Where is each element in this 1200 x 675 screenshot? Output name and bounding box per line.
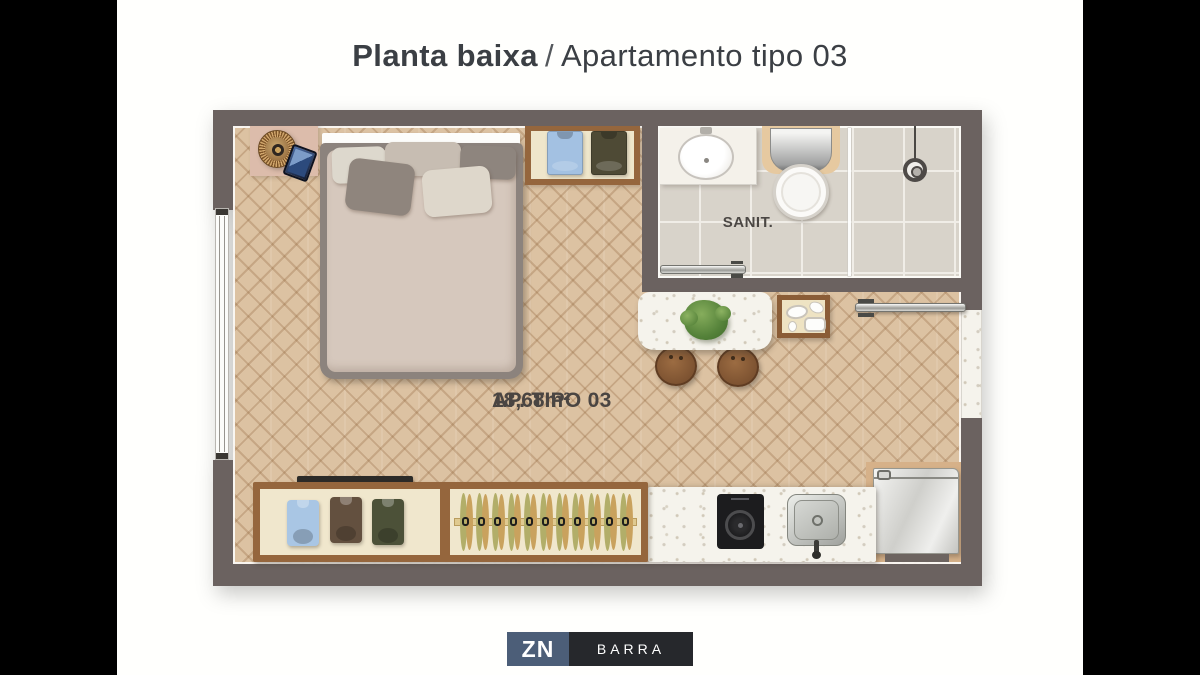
open-closet-niche (525, 125, 640, 185)
title-separator: / (545, 38, 554, 73)
folded-shirt (287, 500, 319, 546)
entry-threshold (961, 310, 982, 418)
kitchen-faucet-icon (814, 540, 819, 556)
shower-drain-icon (903, 158, 927, 182)
bathroom-sliding-door (660, 265, 746, 274)
wall (642, 278, 961, 292)
double-bed (320, 143, 523, 379)
drain-icon (812, 515, 823, 526)
refrigerator (873, 468, 959, 554)
bathroom-faucet-icon (700, 127, 712, 134)
kitchen-sink-basin (794, 500, 839, 540)
cooktop (717, 494, 764, 549)
kitchen-sink (787, 494, 846, 546)
hanging-garment (524, 493, 537, 551)
logo-zn-badge: ZN (507, 632, 569, 666)
wall (961, 418, 982, 586)
logo-barra-badge: BARRA (569, 632, 693, 666)
stool (717, 347, 759, 387)
plant-icon (684, 300, 728, 340)
logo-barra-text: BARRA (597, 641, 665, 657)
unit-area-text: 18,68m² (492, 388, 570, 414)
pillow (344, 157, 416, 217)
hanging-garment (604, 493, 617, 551)
bathroom-label: SANIT. (693, 214, 803, 231)
bathroom-sink (678, 134, 734, 180)
wardrobe-shelf-section (260, 489, 440, 555)
wall (642, 110, 658, 292)
hanging-garment (620, 493, 633, 551)
wardrobe (253, 482, 648, 562)
wall (961, 110, 982, 310)
hanging-shirt (547, 131, 583, 175)
serving-tray (777, 295, 830, 338)
window (215, 208, 229, 460)
hanging-garment (572, 493, 585, 551)
bathroom: SANIT. (658, 126, 961, 278)
page-title: Planta baixa/Apartamento tipo 03 (117, 38, 1083, 74)
wall (213, 110, 233, 210)
hanging-shirt (591, 131, 627, 175)
wall (213, 110, 982, 126)
title-secondary: Apartamento tipo 03 (561, 38, 848, 73)
hanging-garment (588, 493, 601, 551)
wall (213, 564, 982, 586)
entry-door (855, 303, 966, 312)
shower-glass-partition (848, 128, 851, 276)
pillow (421, 165, 493, 218)
hanging-garment (540, 493, 553, 551)
stool (655, 346, 697, 386)
hanging-garment (460, 493, 473, 551)
hanging-garment (556, 493, 569, 551)
kitchen-counter (648, 487, 876, 562)
dish-icon (807, 299, 825, 315)
folded-shirt (330, 497, 362, 543)
hanging-garment (508, 493, 521, 551)
title-primary: Planta baixa (352, 38, 538, 73)
refrigerator-base (885, 554, 949, 562)
dish-icon (804, 317, 826, 332)
presentation-slide: Planta baixa/Apartamento tipo 03 SANIT. (0, 0, 1200, 675)
toilet (773, 164, 829, 220)
shower-hose (914, 126, 916, 160)
burner-icon (725, 510, 755, 540)
folded-shirt (372, 499, 404, 545)
floor-plan: SANIT. (213, 110, 982, 586)
hanging-garment (476, 493, 489, 551)
logo-zn-text: ZN (522, 636, 555, 663)
brand-logo: ZN BARRA (0, 632, 1200, 666)
closet-hanging-section (450, 489, 641, 555)
spoon-icon (788, 321, 797, 332)
hanging-garment (492, 493, 505, 551)
